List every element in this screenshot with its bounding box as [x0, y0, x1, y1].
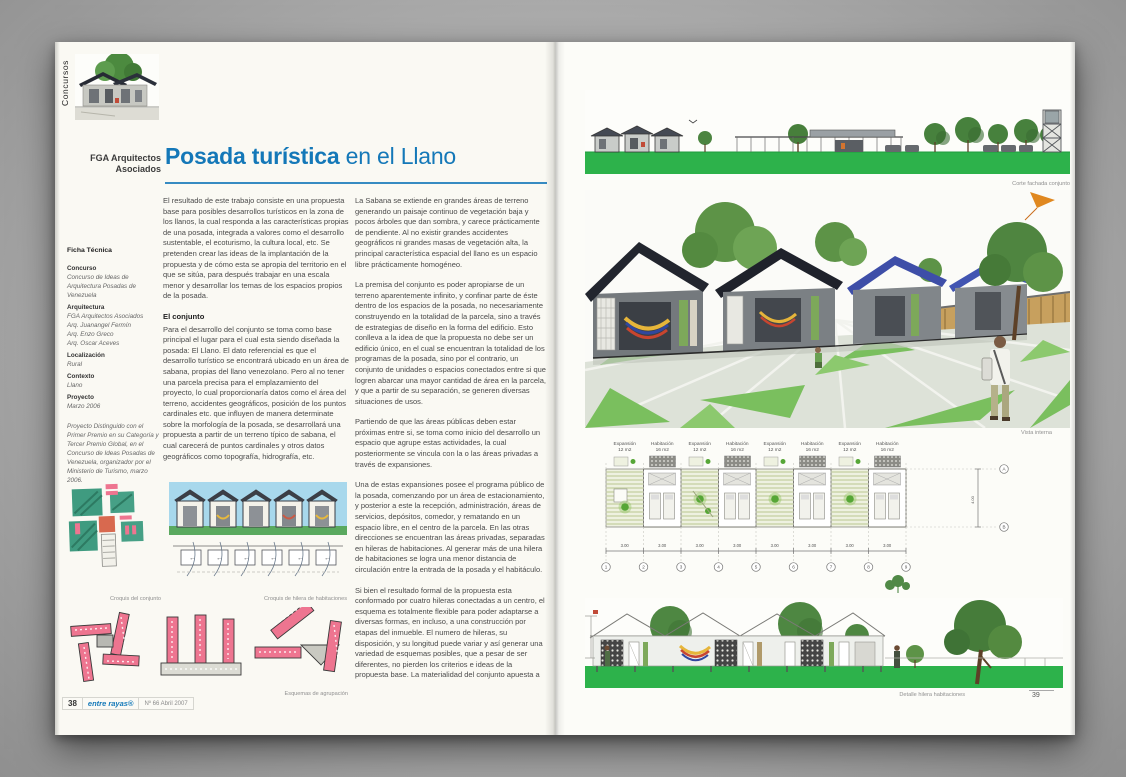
ficha-heading: Ficha Técnica [67, 246, 159, 255]
svg-text:3.00: 3.00 [808, 543, 817, 548]
title-rule [165, 182, 547, 184]
svg-text:8: 8 [867, 565, 870, 570]
sketch-croquis-conjunto [65, 482, 161, 570]
svg-text:5: 5 [755, 565, 758, 570]
article-column-1: El resultado de este trabajo consiste en… [163, 196, 349, 472]
right-page-number: 39 [1029, 690, 1054, 699]
byline: FGA Arquitectos Asociados [77, 153, 161, 175]
paragraph: El resultado de este trabajo consiste en… [163, 196, 349, 302]
svg-text:3.00: 3.00 [846, 543, 855, 548]
subheading-el-conjunto: El conjunto [163, 312, 349, 323]
paragraph: La Sabana se extiende en grandes áreas d… [355, 196, 546, 270]
ficha-label-concurso: Concurso [67, 264, 159, 273]
svg-text:4.00: 4.00 [970, 495, 975, 504]
svg-text:4: 4 [717, 565, 720, 570]
article-column-2: La Sabana se extiende en grandes áreas d… [355, 196, 546, 691]
svg-text:3: 3 [680, 565, 683, 570]
svg-text:B: B [1002, 525, 1005, 530]
page-edge-shadow [55, 42, 60, 735]
paragraph: Para el desarrollo del conjunto se toma … [163, 325, 349, 463]
ficha-value-contexto: Llano [67, 381, 159, 390]
byline-line1: FGA Arquitectos [77, 153, 161, 164]
article-title: Posada turística en el Llano [165, 143, 550, 170]
paragraph: Partiendo de que las áreas públicas debe… [355, 417, 546, 470]
ficha-value-localizacion: Rural [67, 360, 159, 369]
plan-label: Habitación16 m2 [869, 442, 907, 453]
ficha-arquitectura-2: Arq. Juanangel Fermín [67, 321, 159, 330]
ficha-arquitectura-1: FGA Arquitectos Asociados [67, 312, 159, 321]
right-page: Corte fachada conjunto [555, 42, 1075, 735]
ficha-label-contexto: Contexto [67, 372, 159, 381]
svg-text:3.00: 3.00 [771, 543, 780, 548]
paragraph: Si bien el resultado formal de la propue… [355, 586, 546, 681]
plan-label: Expansión12 m2 [831, 442, 869, 453]
issue-info: Nº 66 Abril 2007 [138, 697, 193, 710]
svg-text:←: ← [216, 555, 223, 562]
svg-text:3.00: 3.00 [733, 543, 742, 548]
rendering-vista-interna [585, 190, 1070, 428]
ficha-label-proyecto: Proyecto [67, 393, 159, 402]
caption-corte-fachada: Corte fachada conjunto [585, 181, 1070, 187]
svg-text:←: ← [270, 555, 277, 562]
svg-text:3.00: 3.00 [696, 543, 705, 548]
ficha-tecnica: Ficha Técnica Concurso Concurso de Ideas… [67, 246, 159, 485]
paragraph: Una de estas expansiones posee el progra… [355, 480, 546, 575]
left-page-footer: 38 entre rayas® Nº 66 Abril 2007 [63, 697, 194, 710]
svg-text:1: 1 [605, 565, 608, 570]
paragraph: La premisa del conjunto es poder apropia… [355, 280, 546, 407]
plan-label: Expansión12 m2 [756, 442, 794, 453]
ficha-label-localizacion: Localización [67, 351, 159, 360]
svg-text:3.00: 3.00 [658, 543, 667, 548]
caption-croquis-hilera: Croquis de hilera de habitaciones [169, 596, 347, 602]
elevation-corte-fachada [585, 90, 1070, 180]
magazine-spread: Concursos FGA Arquitectos [55, 42, 1075, 735]
svg-text:←: ← [243, 555, 250, 562]
svg-text:2: 2 [642, 565, 645, 570]
plan-label: Expansión12 m2 [606, 442, 644, 453]
plan-label-row: Expansión12 m2 Habitación16 m2 Expansión… [606, 442, 906, 453]
sketch-esquemas-agrupacion [63, 607, 348, 689]
thumbnail-render [75, 54, 159, 120]
plan-label: Habitación16 m2 [719, 442, 757, 453]
plan-label: Expansión12 m2 [681, 442, 719, 453]
floor-plan-block: Expansión12 m2 Habitación16 m2 Expansión… [598, 442, 1023, 594]
section-tab: Concursos [60, 60, 70, 106]
plan-label: Habitación16 m2 [644, 442, 682, 453]
svg-text:3.00: 3.00 [883, 543, 892, 548]
page-edge-shadow [1070, 42, 1075, 735]
svg-text:6: 6 [792, 565, 795, 570]
article-title-strong: Posada turística [165, 143, 339, 169]
magazine-name: entre rayas® [82, 697, 140, 710]
ficha-value-concurso: Concurso de Ideas de Arquitectura Posada… [67, 273, 159, 300]
svg-text:←: ← [297, 555, 304, 562]
caption-vista-interna: Vista interna [585, 430, 1052, 436]
byline-line2: Asociados [77, 164, 161, 175]
svg-text:7: 7 [830, 565, 833, 570]
elevation-detalle-hilera [585, 598, 1063, 690]
svg-text:3.00: 3.00 [621, 543, 630, 548]
plan-label: Habitación16 m2 [794, 442, 832, 453]
svg-text:←: ← [324, 555, 331, 562]
floor-plan-drawing: 3.00 3.00 3.00 3.00 3.00 3.00 3.00 3.00 [598, 455, 1023, 593]
ficha-label-arquitectura: Arquitectura [67, 303, 159, 312]
caption-detalle-hilera: Detalle hilera habitaciones [585, 692, 965, 698]
ficha-value-proyecto: Marzo 2006 [67, 402, 159, 411]
sketch-croquis-hilera: ←←← ←←← [169, 482, 347, 592]
left-page: Concursos FGA Arquitectos [55, 42, 555, 735]
ficha-arquitectura-4: Arq. Oscar Aceves [67, 339, 159, 348]
article-title-rest: en el Llano [339, 143, 456, 169]
caption-croquis-conjunto: Croquis del conjunto [65, 596, 161, 602]
scanned-magazine-spread: Concursos FGA Arquitectos [0, 0, 1126, 777]
svg-text:9: 9 [905, 565, 908, 570]
ficha-arquitectura-3: Arq. Enzo Greco [67, 330, 159, 339]
left-page-number: 38 [62, 697, 83, 710]
award-note: Proyecto Distinguido con el Primer Premi… [67, 422, 159, 485]
svg-text:←: ← [189, 555, 196, 562]
